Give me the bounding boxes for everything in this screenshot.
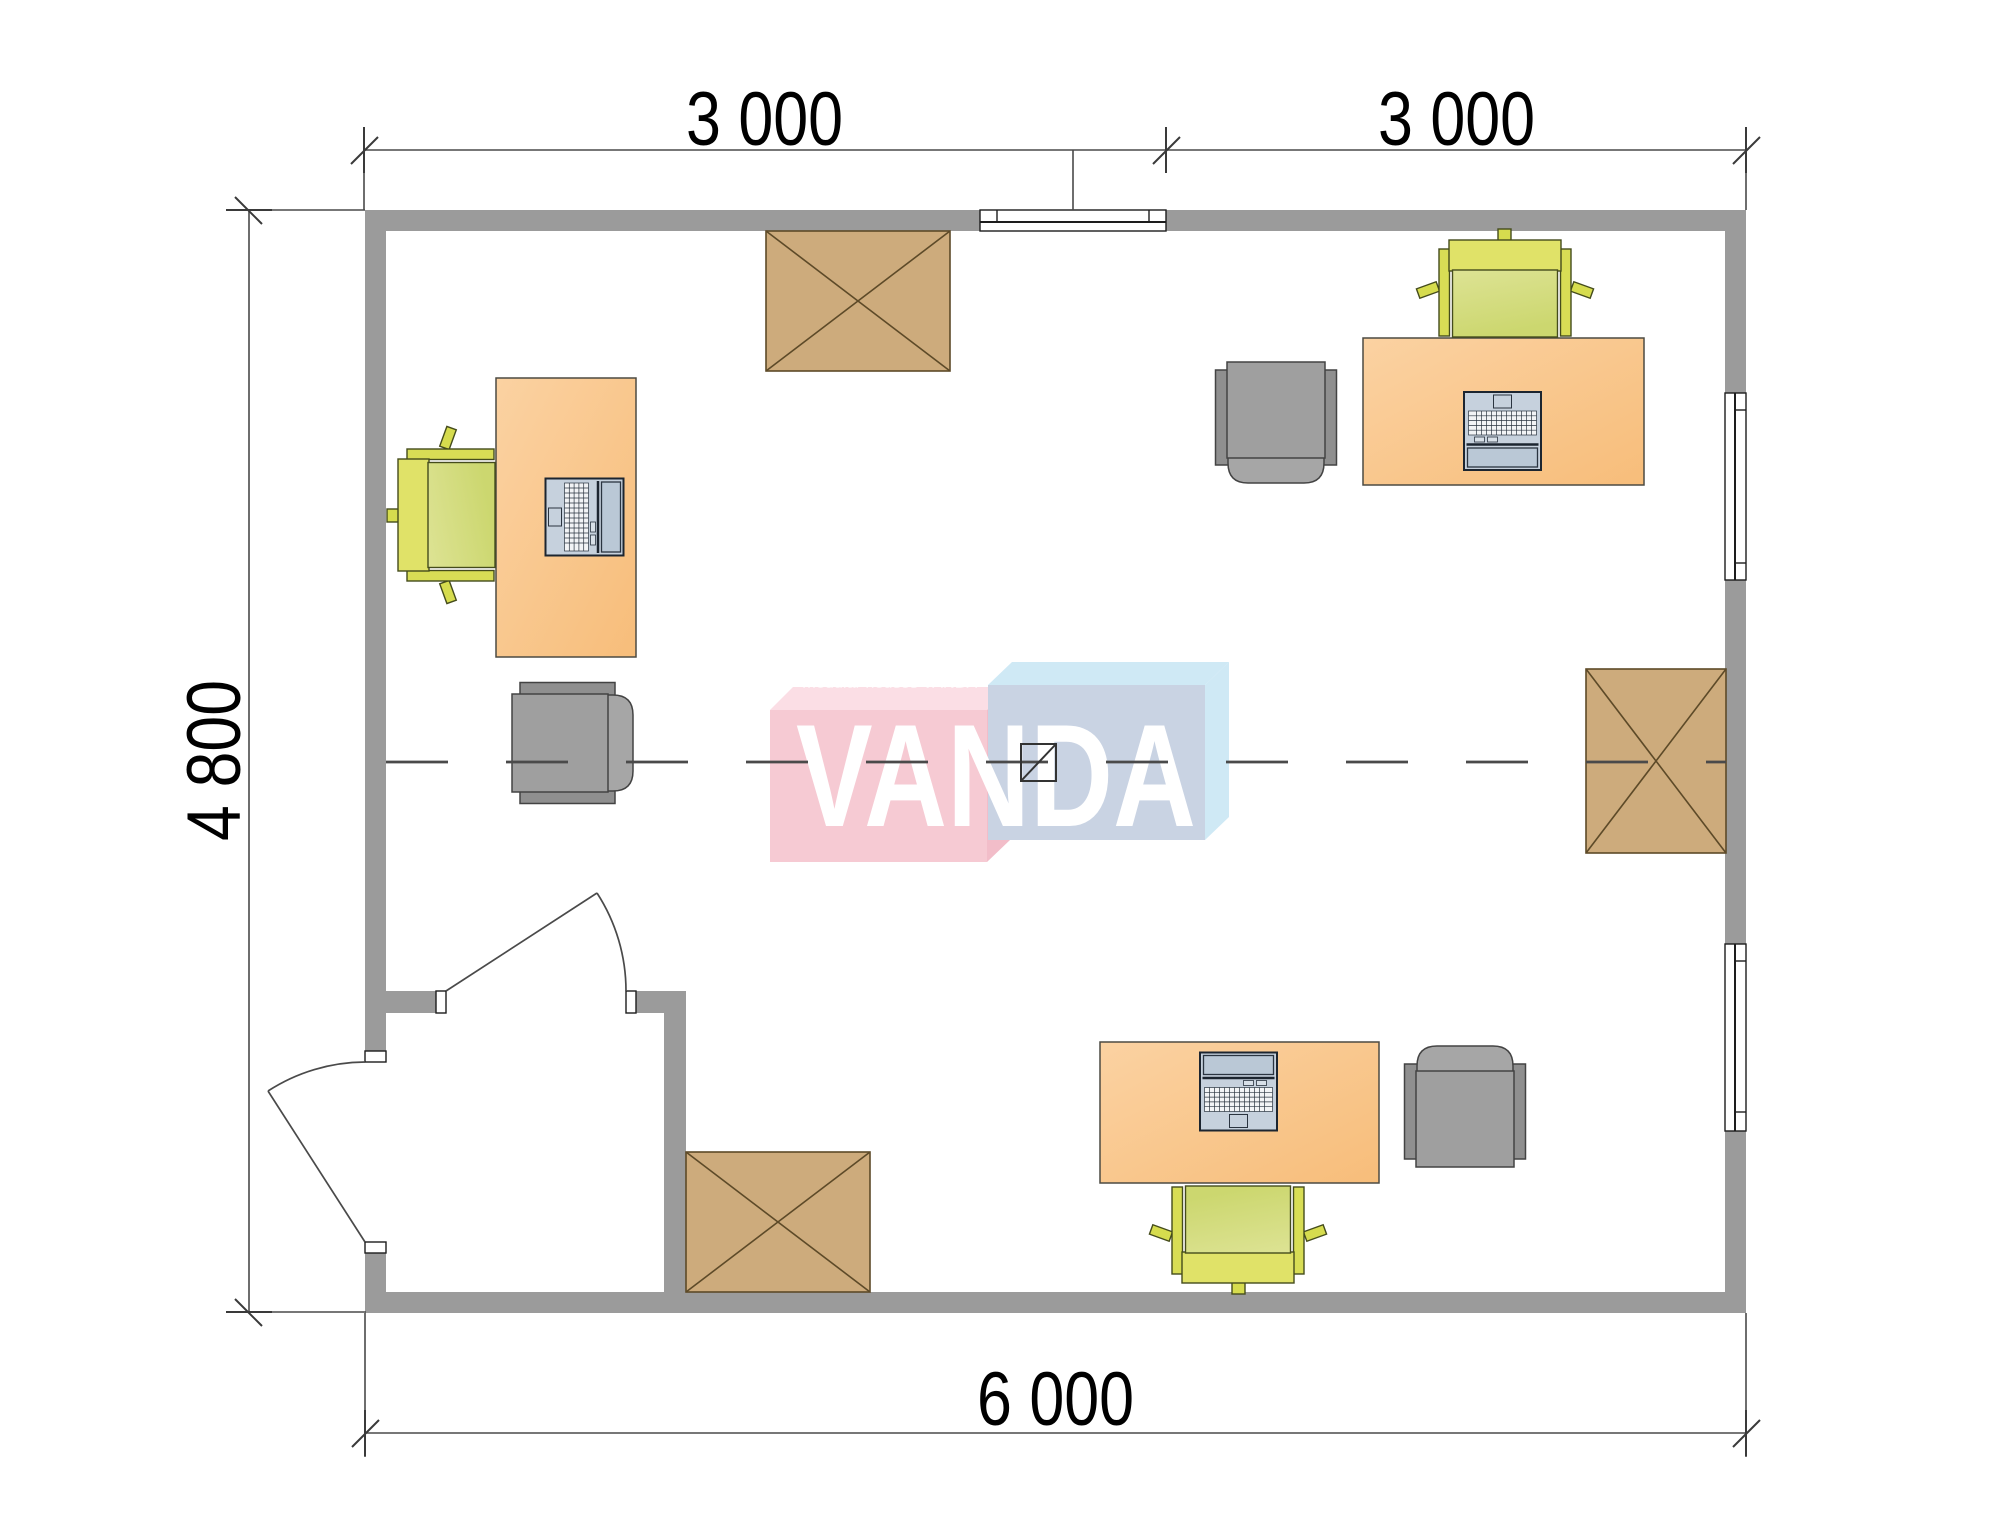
svg-text:modular houses VANDA: modular houses VANDA <box>803 675 978 692</box>
svg-text:3 000: 3 000 <box>686 77 843 162</box>
svg-text:4 800: 4 800 <box>172 680 257 841</box>
svg-text:3 000: 3 000 <box>1378 77 1535 162</box>
svg-text:VANDA: VANDA <box>796 694 1196 857</box>
svg-text:6 000: 6 000 <box>977 1357 1134 1442</box>
